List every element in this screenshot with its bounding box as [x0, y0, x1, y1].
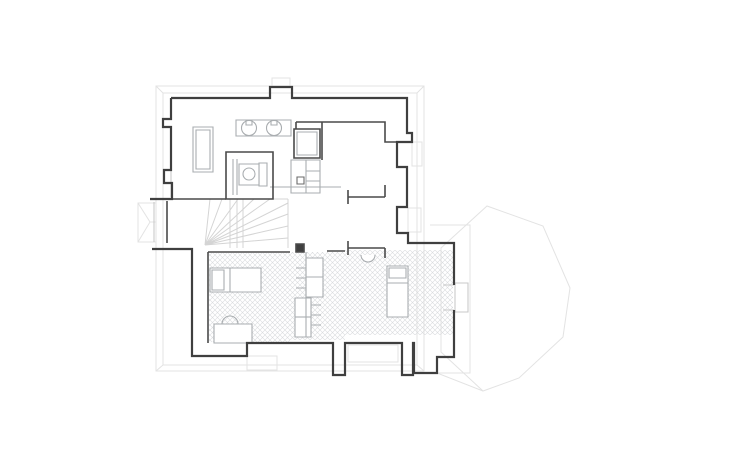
wash-basin-2: [267, 121, 282, 136]
tower-valley-line: [437, 373, 483, 391]
pilaster-ghost-lower: [408, 208, 421, 232]
bed-east: [387, 266, 408, 317]
structural-column: [296, 244, 304, 252]
stair-winder-treads: [205, 199, 288, 245]
dormer-roof: [138, 203, 156, 242]
tower-octagon-roof: [441, 206, 570, 391]
floor-plan-svg: [0, 0, 736, 460]
staircase-layer: [192, 199, 288, 248]
toilet-cistern: [259, 163, 267, 186]
stair-upper-flight: [224, 199, 243, 248]
desk-west: [214, 324, 252, 343]
hall-wall-upper-T: [348, 185, 385, 204]
shower-partition-lines: [233, 159, 237, 195]
wash-basin-1: [242, 121, 257, 136]
chimney-ghost-bottom-left: [247, 356, 277, 370]
chimney-ghost-bottom-right: [348, 345, 398, 362]
fridge-inner-line: [297, 132, 317, 155]
room-north-inner-wall: [322, 122, 397, 142]
bay-window: [455, 283, 468, 312]
fridge-unit: [294, 129, 320, 158]
partition-kitchen: [296, 122, 322, 160]
bed-west: [210, 268, 261, 292]
floor-plan-page: [0, 0, 736, 460]
toilet-body: [239, 164, 259, 185]
outer-wall-left: [150, 98, 172, 199]
